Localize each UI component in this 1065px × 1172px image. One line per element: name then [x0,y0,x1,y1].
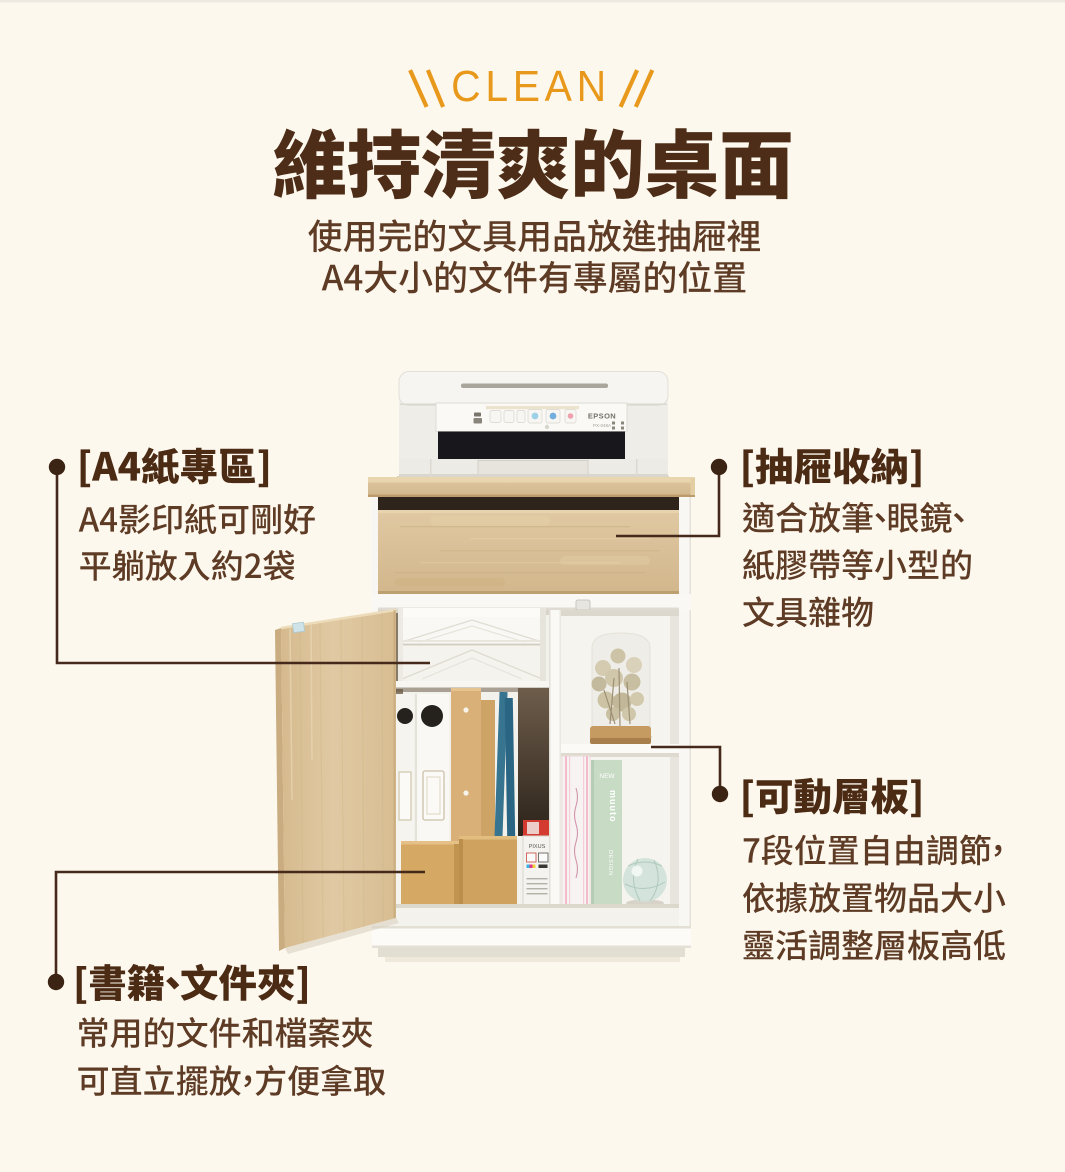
svg-text:DESIGN: DESIGN [607,850,613,876]
svg-text:CLEAN: CLEAN [451,63,611,112]
svg-text:muuto: muuto [608,790,618,823]
svg-text:EPSON: EPSON [588,412,616,421]
svg-text:NEW: NEW [599,773,615,780]
svg-text:PX-048A: PX-048A [593,423,611,428]
svg-text:PIXUS: PIXUS [529,844,546,850]
